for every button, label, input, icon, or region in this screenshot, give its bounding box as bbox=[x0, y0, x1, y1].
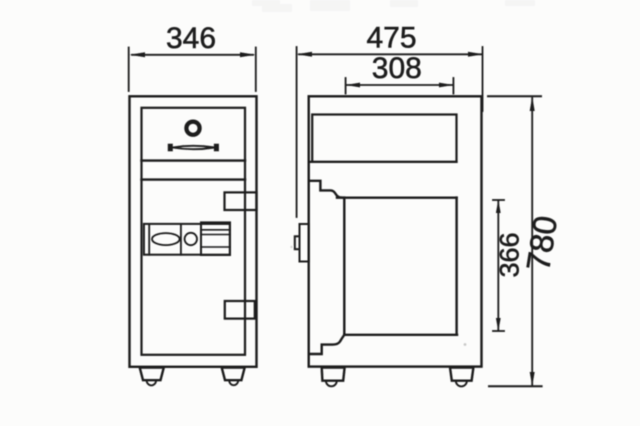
svg-text:475: 475 bbox=[366, 22, 416, 55]
svg-text:346: 346 bbox=[166, 22, 216, 55]
svg-text:780: 780 bbox=[519, 213, 564, 273]
svg-text:308: 308 bbox=[372, 52, 422, 85]
svg-text:366: 366 bbox=[495, 232, 525, 277]
